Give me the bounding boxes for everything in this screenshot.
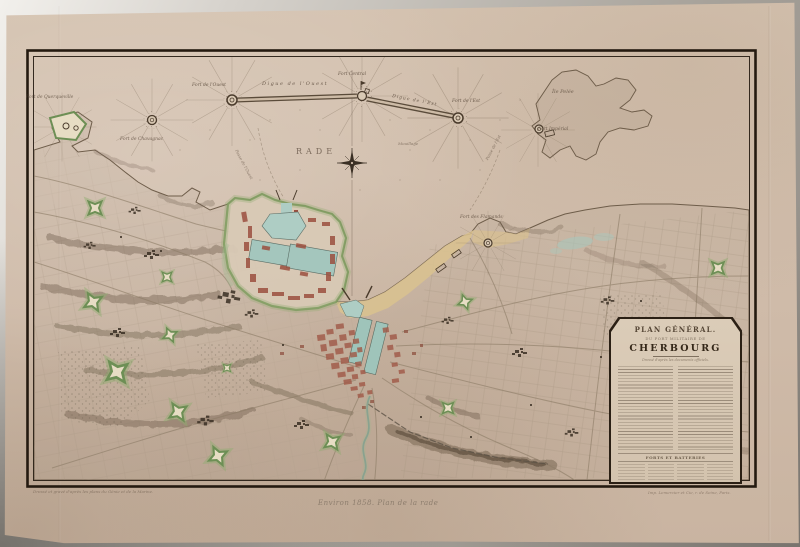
sounding-dots (179, 99, 520, 190)
cartouche-panel: PLAN GÉNÉRAL. DU PORT MILITAIRE DE CHERB… (611, 319, 740, 482)
legend-columns (618, 366, 733, 450)
imprint-right: Imp. Lemercier et Cie, r. de Seine, Pari… (648, 490, 731, 495)
legend-mini-column (677, 464, 704, 487)
label-fort-querqueville: Fort de Querqueville (26, 96, 73, 101)
arsenal-port-militaire (224, 190, 348, 310)
label-fort-imperial: Fort Impérial (538, 128, 568, 133)
label-ile-pelee: Île Pelée (552, 90, 574, 95)
cartouche-title: PLAN GÉNÉRAL. (618, 325, 733, 334)
imprint-left: Dressé et gravé d'après les plans du Gén… (33, 489, 153, 494)
label-fort-flamands: Fort des Flamands (460, 216, 503, 221)
legend-mini-columns (618, 464, 733, 487)
legend-section-header: FORTS ET BATTERIES (618, 453, 733, 462)
legend-mini-column (648, 464, 675, 487)
legend-mini-column (707, 464, 734, 487)
legend-column (618, 366, 673, 450)
compass-rose-icon (337, 148, 367, 178)
fort-chavagnac-glyph (143, 111, 161, 129)
cartouche-subtitle2: Dressé d'après les documents officiels. (618, 358, 733, 362)
ile-pelee-island (532, 70, 652, 160)
label-rade: RADE (296, 148, 336, 156)
label-fort-central: Fort Central (338, 73, 366, 78)
title-cartouche: PLAN GÉNÉRAL. DU PORT MILITAIRE DE CHERB… (609, 317, 742, 484)
cartouche-city: CHERBOURG (618, 343, 733, 354)
cartouche-subtitle: DU PORT MILITAIRE DE (618, 336, 733, 341)
photographed-map: Fort de Querqueville Fort de Chavagnac F… (0, 0, 800, 547)
label-mouillage: Mouillage (398, 142, 418, 146)
label-fort-ouest: Fort de l'Ouest (192, 84, 226, 89)
label-fort-chavagnac: Fort de Chavagnac (120, 138, 163, 143)
label-digue-ouest: Digue de l'Ouest (262, 82, 328, 87)
legend-column (678, 366, 733, 450)
label-fort-est: Fort de l'Est (452, 100, 480, 105)
pencil-inscription: Environ 1858. Plan de la rade (318, 499, 438, 507)
cartouche-flourish (653, 356, 699, 357)
legend-mini-column (618, 464, 645, 487)
